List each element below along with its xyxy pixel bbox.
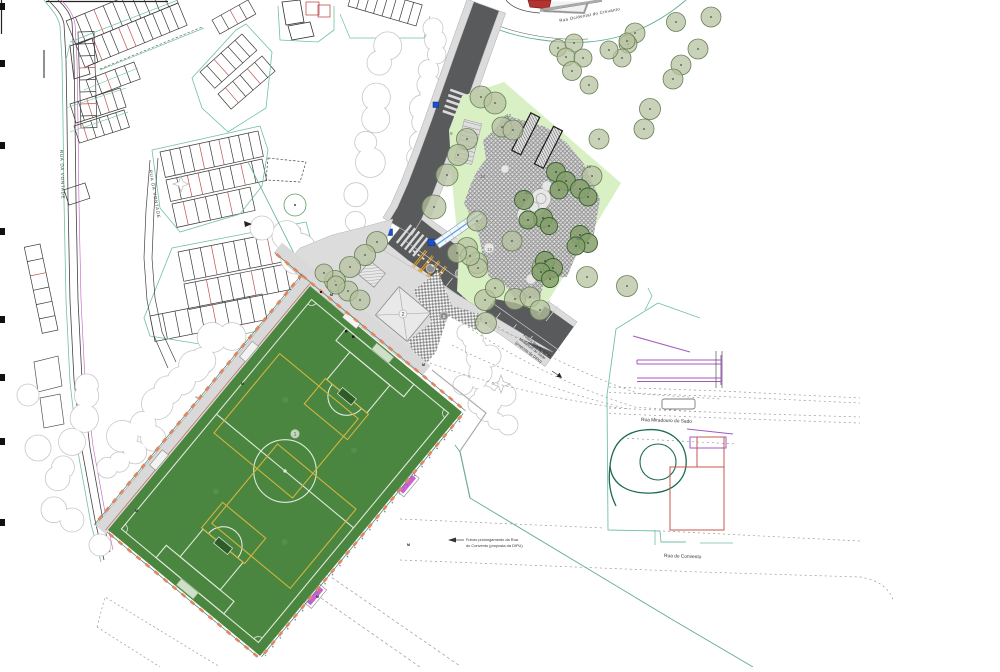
svg-text:12: 12 <box>487 247 493 252</box>
svg-text:12: 12 <box>506 113 512 118</box>
svg-text:10: 10 <box>480 174 486 179</box>
svg-text:M: M <box>241 382 244 386</box>
svg-text:M: M <box>135 509 138 513</box>
svg-text:10: 10 <box>576 236 582 241</box>
svg-text:2: 2 <box>401 312 404 318</box>
svg-text:12: 12 <box>586 164 592 169</box>
svg-text:10: 10 <box>525 190 531 195</box>
svg-text:do Convento (proposta da DIPU): do Convento (proposta da DIPU) <box>466 543 523 548</box>
svg-text:Futuro prolongamento da Rua: Futuro prolongamento da Rua <box>466 537 519 542</box>
svg-text:9: 9 <box>450 131 453 136</box>
svg-text:M: M <box>407 543 410 547</box>
svg-text:1: 1 <box>293 432 296 438</box>
svg-text:M: M <box>316 595 319 599</box>
svg-text:M: M <box>422 363 425 367</box>
svg-text:M: M <box>330 293 333 297</box>
